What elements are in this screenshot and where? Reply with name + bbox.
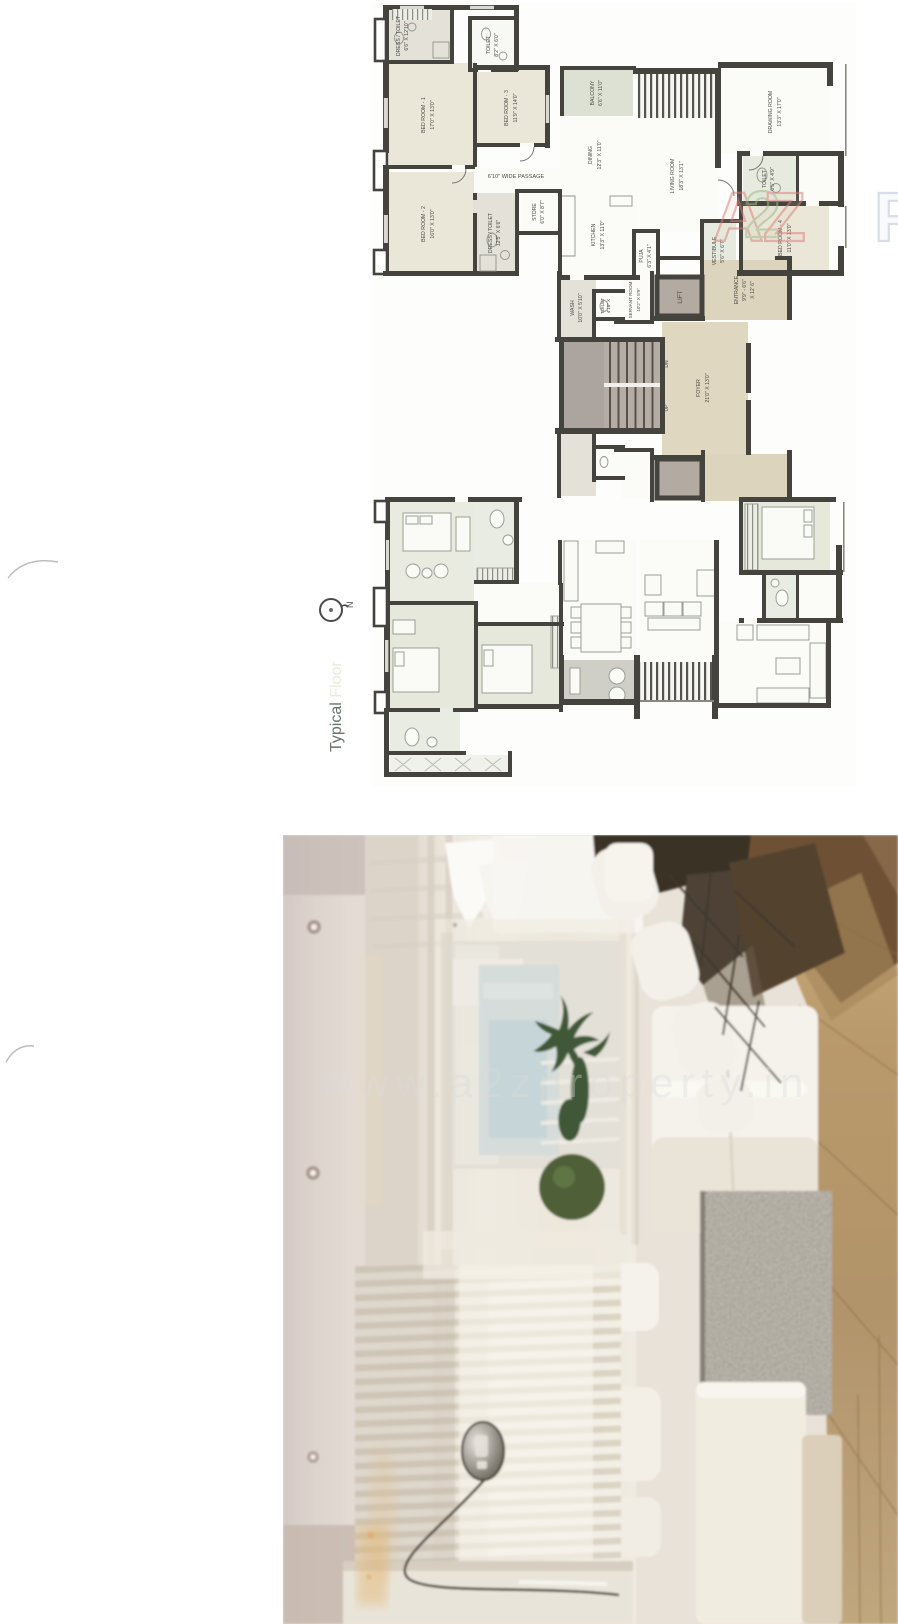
svg-text:DRESS / TOILET: DRESS / TOILET	[396, 15, 402, 56]
svg-text:Z: Z	[763, 178, 806, 256]
svg-text:N: N	[345, 602, 355, 609]
svg-text:9'9" - 6'6": 9'9" - 6'6"	[742, 279, 748, 301]
svg-text:BED ROOM - 2: BED ROOM - 2	[421, 206, 427, 242]
svg-text:10'0" X 5'10": 10'0" X 5'10"	[578, 293, 584, 322]
svg-text:P: P	[874, 178, 898, 256]
svg-text:KITCHEN: KITCHEN	[591, 223, 597, 246]
svg-text:13'3" X 11'0": 13'3" X 11'0"	[600, 220, 606, 249]
svg-text:21'0" X 13'0": 21'0" X 13'0"	[705, 373, 711, 402]
svg-text:STORE: STORE	[532, 203, 538, 221]
svg-text:4'10" X: 4'10" X	[606, 299, 611, 314]
svg-text:BALCONY: BALCONY	[590, 80, 596, 105]
svg-text:UP: UP	[664, 404, 670, 412]
svg-text:16'0" X 13'0": 16'0" X 13'0"	[430, 209, 436, 238]
svg-text:6'0" X 8'7": 6'0" X 8'7"	[540, 200, 546, 224]
svg-text:12'3" X 11'0": 12'3" X 11'0"	[597, 140, 603, 169]
svg-text:ENTRANCE: ENTRANCE	[734, 275, 740, 304]
svg-text:DRESS / TOILET: DRESS / TOILET	[488, 212, 494, 253]
svg-text:FOYER: FOYER	[696, 379, 702, 397]
svg-text:DRAWING ROOM: DRAWING ROOM	[768, 91, 774, 133]
svg-text:PUJA: PUJA	[639, 249, 645, 263]
svg-text:BED ROOM - 1: BED ROOM - 1	[421, 97, 427, 133]
svg-text:12'5" X 6'6": 12'5" X 6'6"	[496, 220, 502, 247]
svg-text:X 12' 6": X 12' 6"	[750, 281, 756, 299]
svg-text:BED ROOM - 3: BED ROOM - 3	[504, 90, 510, 126]
svg-text:WASH: WASH	[570, 300, 576, 316]
svg-text:Typical Floor: Typical Floor	[328, 661, 345, 752]
svg-text:10'2" X 5'9": 10'2" X 5'9"	[636, 288, 641, 312]
svg-text:LIVING ROOM: LIVING ROOM	[670, 159, 676, 194]
svg-text:DINING: DINING	[588, 146, 594, 164]
svg-text:6'10" WIDE PASSAGE: 6'10" WIDE PASSAGE	[488, 174, 545, 180]
svg-text:6'3" X 4'1": 6'3" X 4'1"	[647, 244, 653, 268]
svg-text:11'9" X 14'0": 11'9" X 14'0"	[513, 93, 519, 122]
svg-text:TOILET: TOILET	[486, 35, 492, 54]
svg-text:17'0" X 13'0": 17'0" X 13'0"	[430, 100, 436, 129]
svg-text:13'3" X 17'0": 13'3" X 17'0"	[777, 97, 783, 126]
svg-text:TOILET: TOILET	[600, 298, 605, 314]
svg-text:8'2" X 6'0": 8'2" X 6'0"	[494, 33, 500, 57]
svg-text:www.a2zproperty.in: www.a2zproperty.in	[320, 1059, 810, 1106]
svg-text:6'6" X 12'10": 6'6" X 12'10"	[404, 21, 410, 50]
svg-text:DN: DN	[664, 360, 670, 368]
svg-text:6'6" X 11'0": 6'6" X 11'0"	[598, 80, 604, 106]
svg-text:SERVANT ROOM: SERVANT ROOM	[628, 281, 633, 318]
svg-text:18'3" X 13'1": 18'3" X 13'1"	[679, 161, 685, 190]
svg-text:LIFT: LIFT	[677, 290, 684, 303]
